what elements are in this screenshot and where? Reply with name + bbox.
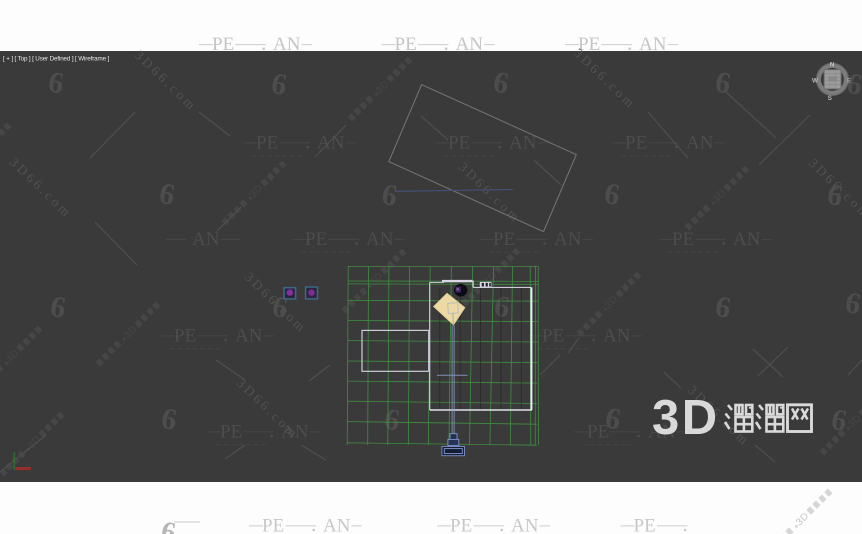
svg-text:AN: AN [366, 229, 394, 250]
svg-text:AN: AN [511, 516, 539, 534]
svg-text:AN: AN [456, 34, 484, 55]
svg-text:E: E [847, 77, 852, 84]
svg-text:PE: PE [212, 34, 234, 55]
svg-text:3D: 3D [652, 391, 720, 445]
svg-text:S: S [828, 95, 833, 102]
svg-text:PE: PE [262, 516, 284, 534]
svg-text:AN: AN [603, 326, 631, 347]
svg-text:PE: PE [493, 229, 515, 250]
svg-text:PE: PE [256, 133, 278, 154]
svg-text:AN: AN [733, 229, 761, 250]
svg-text:PE: PE [634, 516, 656, 534]
svg-text:AN: AN [686, 133, 714, 154]
svg-text:AN: AN [235, 326, 263, 347]
svg-text:PE: PE [395, 34, 417, 55]
svg-text:AN: AN [273, 34, 301, 55]
svg-text:PE: PE [305, 229, 327, 250]
svg-text:PE: PE [448, 133, 470, 154]
svg-text:PE: PE [174, 326, 196, 347]
svg-text:AN: AN [639, 34, 667, 55]
svg-text:AN: AN [554, 229, 582, 250]
svg-text:AN: AN [509, 133, 537, 154]
svg-text:AN: AN [323, 516, 351, 534]
svg-text:PE: PE [220, 422, 242, 443]
svg-text:PE: PE [672, 229, 694, 250]
svg-text:PE: PE [625, 133, 647, 154]
svg-text:[ + ] [ Top ] [ User Defined ]: [ + ] [ Top ] [ User Defined ] [ Wirefra… [3, 55, 110, 62]
svg-text:N: N [830, 62, 835, 69]
svg-text:AN: AN [192, 229, 220, 250]
svg-text:PE: PE [542, 326, 564, 347]
svg-text:PE: PE [450, 516, 472, 534]
svg-text:W: W [812, 77, 819, 84]
